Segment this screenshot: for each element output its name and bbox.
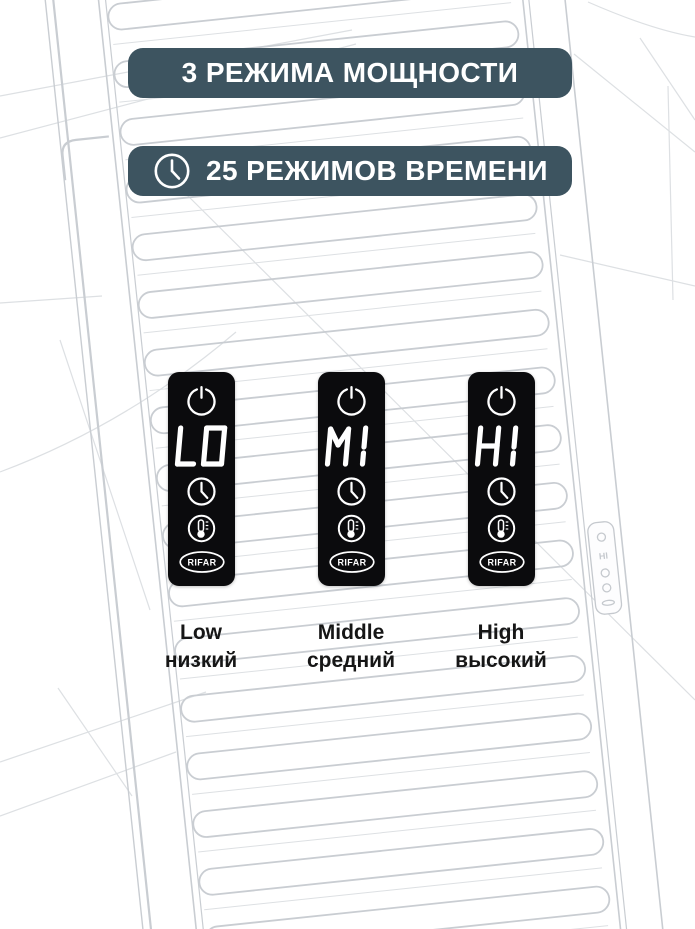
- mode-label-en: Middle: [276, 619, 426, 647]
- mode-label-low: Low низкий: [126, 619, 276, 675]
- power-modes-label: 3 РЕЖИМА МОЩНОСТИ: [182, 57, 519, 89]
- sketch-panel-display: HI: [598, 551, 608, 562]
- segment-display: [472, 424, 532, 468]
- mode-label-en: Low: [126, 619, 276, 647]
- thermometer-icon: [337, 514, 366, 543]
- brand-name: RIFAR: [337, 557, 366, 567]
- control-panel-low: RIFAR: [168, 372, 235, 586]
- control-panel-high: RIFAR: [468, 372, 535, 586]
- clock-icon: [486, 476, 517, 507]
- brand-logo: RIFAR: [177, 550, 227, 574]
- time-modes-banner: 25 РЕЖИМОВ ВРЕМЕНИ: [128, 146, 572, 196]
- power-icon: [486, 386, 517, 417]
- brand-name: RIFAR: [487, 557, 516, 567]
- clock-icon: [152, 151, 192, 191]
- clock-icon: [186, 476, 217, 507]
- product-infographic: HI 3 РЕЖИМА МОЩНОСТИ 25 РЕЖИМОВ ВРЕМЕНИ: [0, 0, 695, 929]
- power-icon: [336, 386, 367, 417]
- mode-label-high: High высокий: [426, 619, 576, 675]
- thermometer-icon: [487, 514, 516, 543]
- brand-logo: RIFAR: [327, 550, 377, 574]
- segment-display: [322, 424, 382, 468]
- mode-label-ru: средний: [276, 647, 426, 675]
- mode-labels: Low низкий Middle средний High высокий: [126, 619, 576, 675]
- time-modes-label: 25 РЕЖИМОВ ВРЕМЕНИ: [206, 155, 548, 187]
- mode-label-en: High: [426, 619, 576, 647]
- power-icon: [186, 386, 217, 417]
- brand-name: RIFAR: [187, 557, 216, 567]
- thermometer-icon: [187, 514, 216, 543]
- control-panel-middle: RIFAR: [318, 372, 385, 586]
- brand-logo: RIFAR: [477, 550, 527, 574]
- power-modes-banner: 3 РЕЖИМА МОЩНОСТИ: [128, 48, 572, 98]
- mode-label-middle: Middle средний: [276, 619, 426, 675]
- mode-label-ru: низкий: [126, 647, 276, 675]
- segment-display: [172, 424, 232, 468]
- clock-icon: [336, 476, 367, 507]
- mode-label-ru: высокий: [426, 647, 576, 675]
